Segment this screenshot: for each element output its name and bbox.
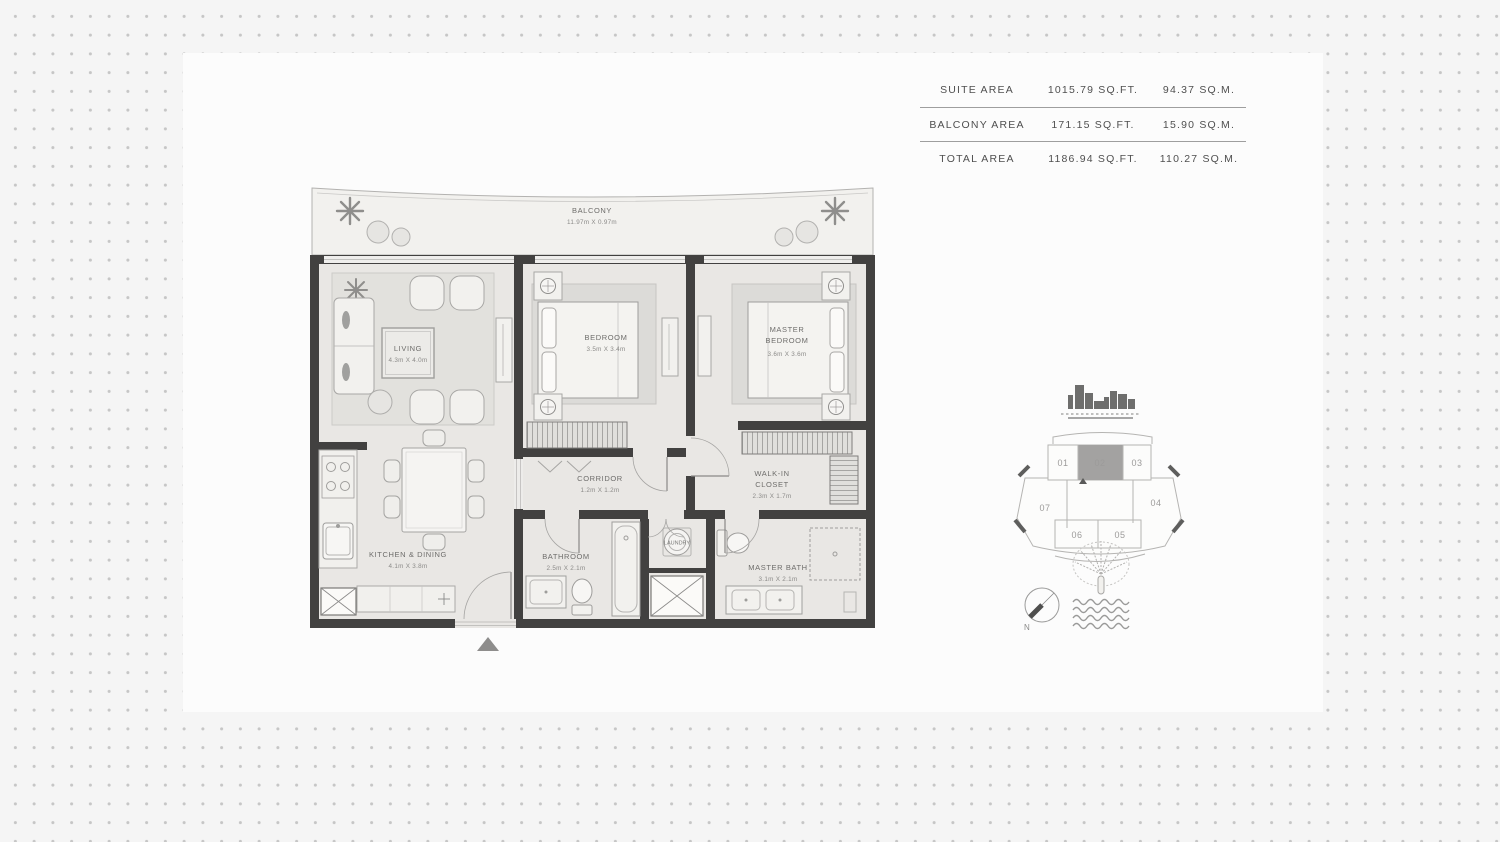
pillow [830, 352, 844, 392]
total-area-sqm: 110.27 SQ.M. [1152, 153, 1246, 165]
area-row-suite: SUITE AREA 1015.79 SQ.FT. 94.37 SQ.M. [920, 73, 1246, 107]
walkin-label-2: CLOSET [755, 480, 789, 489]
total-area-sqft: 1186.94 SQ.FT. [1034, 153, 1152, 165]
ottoman [368, 390, 392, 414]
toilet [572, 579, 592, 603]
tv-unit [496, 318, 512, 382]
unit-06: 06 [1071, 530, 1082, 540]
armchair [450, 276, 484, 310]
kitchen-sink [323, 523, 353, 559]
waves-icon [1073, 600, 1129, 629]
armchair [450, 390, 484, 424]
corridor-dims: 1.2m X 1.2m [581, 487, 620, 494]
area-row-total: TOTAL AREA 1186.94 SQ.FT. 110.27 SQ.M. [920, 141, 1246, 175]
palm-plant-right-icon [822, 198, 848, 224]
master-bath-dims: 3.1m X 2.1m [759, 576, 798, 583]
balcony-table [775, 228, 793, 246]
suite-area-sqft: 1015.79 SQ.FT. [1034, 84, 1152, 96]
suite-area-label: SUITE AREA [920, 84, 1034, 96]
building-locator: 01 02 03 07 04 06 05 [1015, 433, 1183, 562]
unit-03: 03 [1131, 458, 1142, 468]
dining-chair [423, 534, 445, 550]
palm-plant-left-icon [337, 198, 363, 224]
dresser [698, 316, 711, 376]
dining-chair [468, 496, 484, 518]
balcony-label: BALCONY [572, 206, 612, 215]
toilet [727, 533, 749, 553]
master-bedroom-label-2: BEDROOM [766, 336, 809, 345]
wardrobe [830, 456, 858, 504]
balcony-table [392, 228, 410, 246]
area-row-balcony: BALCONY AREA 171.15 SQ.FT. 15.90 SQ.M. [920, 107, 1246, 141]
bathroom-label: BATHROOM [542, 552, 590, 561]
total-area-label: TOTAL AREA [920, 153, 1034, 165]
unit-02: 02 [1094, 458, 1105, 468]
balcony-area-label: BALCONY AREA [920, 119, 1034, 131]
dining-chair [468, 460, 484, 482]
pillow [542, 352, 556, 392]
balcony-chair [367, 221, 389, 243]
laundry-label: LAUNDRY [664, 541, 691, 547]
kitchen-label: KITCHEN & DINING [369, 550, 447, 559]
bedroom-label: BEDROOM [585, 333, 628, 342]
dresser [662, 318, 678, 376]
compass-icon: N [1024, 588, 1059, 632]
unit-05: 05 [1114, 530, 1125, 540]
living-room: LIVING 4.3m X 4.0m [332, 273, 512, 425]
dining-chair [384, 496, 400, 518]
pillow [830, 308, 844, 348]
wardrobe [527, 422, 627, 448]
master-bedroom-label-1: MASTER [770, 325, 805, 334]
corridor-label: CORRIDOR [577, 474, 623, 483]
balcony: BALCONY 11.97m X 0.97m [312, 188, 873, 255]
page: SUITE AREA 1015.79 SQ.FT. 94.37 SQ.M. BA… [0, 0, 1500, 842]
kitchen-dims: 4.1m X 3.8m [389, 563, 428, 570]
unit-01: 01 [1057, 458, 1068, 468]
dining-table [402, 448, 466, 532]
bathroom-dims: 2.5m X 2.1m [547, 565, 586, 572]
pillow [542, 308, 556, 348]
skyline-icon [1068, 385, 1135, 409]
key-plan: 01 02 03 07 04 06 05 N [1005, 378, 1205, 648]
balcony-chair [796, 221, 818, 243]
unit-07: 07 [1039, 503, 1050, 513]
bedroom-dims: 3.5m X 3.4m [587, 346, 626, 353]
armchair [410, 276, 444, 310]
living-label: LIVING [394, 344, 422, 353]
armchair [410, 390, 444, 424]
floorplan: BALCONY 11.97m X 0.97m [310, 178, 875, 658]
north-label: N [1024, 623, 1030, 632]
walkin-label-1: WALK-IN [754, 469, 789, 478]
walkin-dims: 2.3m X 1.7m [753, 493, 792, 500]
balcony-area-sqm: 15.90 SQ.M. [1152, 119, 1246, 131]
coffee-table [382, 328, 434, 378]
wardrobe [742, 432, 852, 454]
entry-arrow-icon [477, 637, 499, 651]
suite-area-sqm: 94.37 SQ.M. [1152, 84, 1246, 96]
area-table: SUITE AREA 1015.79 SQ.FT. 94.37 SQ.M. BA… [920, 73, 1246, 175]
master-bedroom-dims: 3.6m X 3.6m [768, 351, 807, 358]
dining-chair [384, 460, 400, 482]
balcony-dims: 11.97m X 0.97m [567, 219, 617, 226]
living-dims: 4.3m X 4.0m [389, 357, 428, 364]
master-bath-label: MASTER BATH [748, 563, 807, 572]
balcony-area-sqft: 171.15 SQ.FT. [1034, 119, 1152, 131]
dining-chair [423, 430, 445, 446]
unit-04: 04 [1150, 498, 1161, 508]
